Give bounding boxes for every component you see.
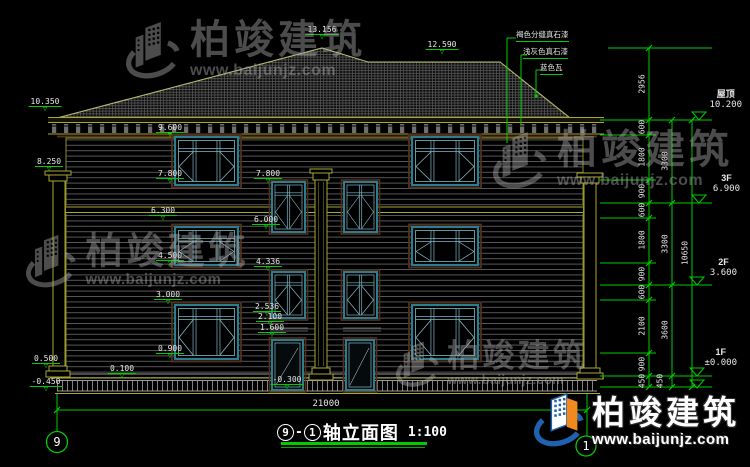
brand-logo-icon <box>534 392 588 452</box>
brand-url: www.baijunjz.com <box>592 431 740 448</box>
title-dash: - <box>295 425 303 440</box>
roof <box>57 48 570 118</box>
brand-name: 柏竣建筑 <box>592 396 740 431</box>
title-axis-end-bubble: 1 <box>304 424 321 441</box>
title-underline-thin <box>281 447 425 448</box>
title-scale: 1:100 <box>408 425 447 440</box>
site-logo: 柏竣建筑 www.baijunjz.com <box>534 392 740 452</box>
cad-elevation-drawing: 10.3508.25013.15612.5909.6007.8007.8006.… <box>0 0 750 467</box>
title-axis-start-bubble: 9 <box>277 424 294 441</box>
title-underline-thick <box>281 442 427 445</box>
